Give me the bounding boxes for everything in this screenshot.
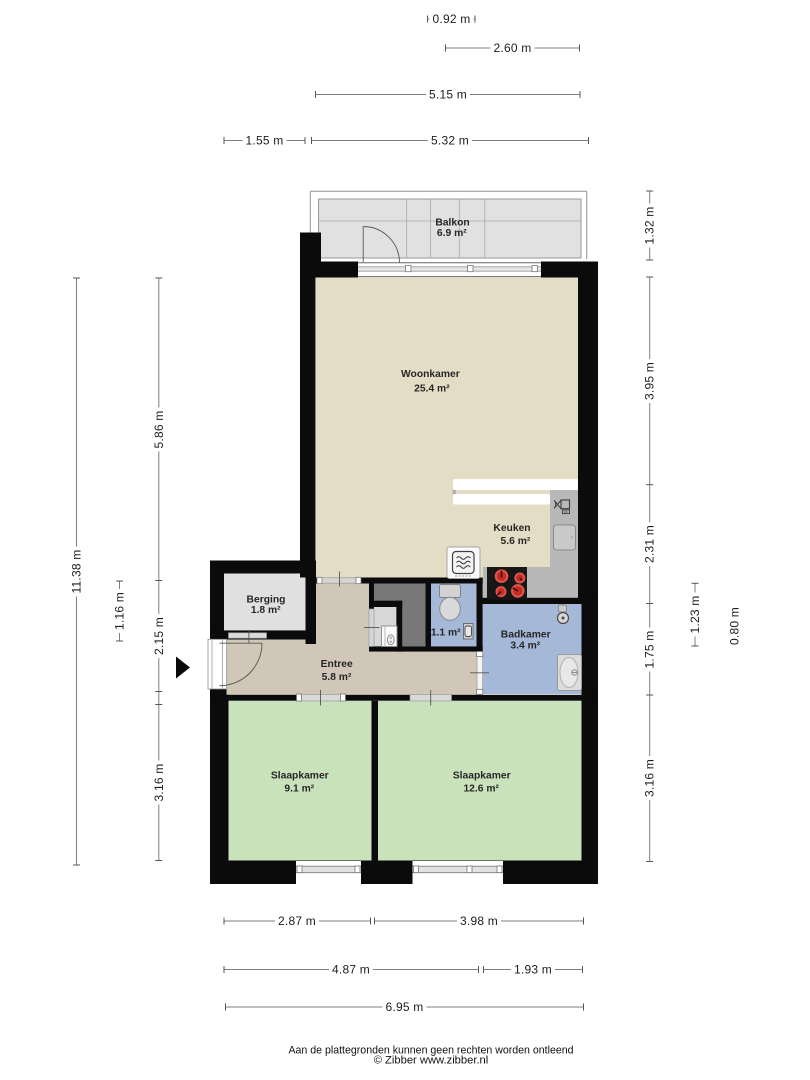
svg-text:© Zibber www.zibber.nl: © Zibber www.zibber.nl: [374, 1055, 489, 1067]
svg-text:1.75 m: 1.75 m: [643, 631, 657, 669]
svg-text:4.87 m: 4.87 m: [332, 963, 370, 977]
svg-text:12.6 m²: 12.6 m²: [463, 784, 499, 795]
svg-text:1.8 m²: 1.8 m²: [251, 605, 281, 616]
svg-text:Slaapkamer: Slaapkamer: [453, 771, 511, 782]
svg-text:5.15 m: 5.15 m: [429, 88, 467, 102]
svg-text:1.32 m: 1.32 m: [643, 207, 657, 245]
svg-text:6.95 m: 6.95 m: [386, 1000, 424, 1014]
svg-text:1.55 m: 1.55 m: [246, 134, 284, 148]
svg-text:5.8 m²: 5.8 m²: [322, 672, 352, 683]
svg-text:5.86 m: 5.86 m: [152, 411, 166, 449]
svg-text:2.60 m: 2.60 m: [494, 41, 532, 55]
svg-text:2.87 m: 2.87 m: [278, 914, 316, 928]
svg-text:3.16 m: 3.16 m: [152, 764, 166, 802]
svg-text:0.92 m: 0.92 m: [433, 12, 471, 26]
svg-text:5.32 m: 5.32 m: [431, 134, 469, 148]
svg-text:3.4 m²: 3.4 m²: [510, 641, 540, 652]
svg-text:3.16 m: 3.16 m: [643, 759, 657, 797]
svg-text:Berging: Berging: [247, 595, 286, 606]
svg-text:1.16 m: 1.16 m: [113, 592, 127, 630]
svg-text:1.93 m: 1.93 m: [514, 963, 552, 977]
svg-text:2.15 m: 2.15 m: [152, 617, 166, 655]
svg-text:1.23 m: 1.23 m: [688, 596, 702, 634]
svg-text:Badkamer: Badkamer: [501, 630, 551, 641]
svg-text:2.31 m: 2.31 m: [643, 525, 657, 563]
svg-text:9.1 m²: 9.1 m²: [284, 784, 314, 795]
svg-text:3.98 m: 3.98 m: [460, 914, 498, 928]
svg-text:Entree: Entree: [321, 659, 353, 670]
svg-text:11.38 m: 11.38 m: [70, 550, 84, 594]
svg-text:Slaapkamer: Slaapkamer: [271, 771, 329, 782]
svg-text:3.95 m: 3.95 m: [643, 362, 657, 400]
svg-text:Balkon: Balkon: [435, 218, 469, 229]
svg-text:0.80 m: 0.80 m: [728, 607, 742, 645]
svg-text:6.9 m²: 6.9 m²: [437, 228, 467, 239]
svg-text:5.6 m²: 5.6 m²: [501, 536, 531, 547]
svg-text:Keuken: Keuken: [493, 523, 530, 534]
svg-text:25.4 m²: 25.4 m²: [414, 384, 450, 395]
svg-text:Woonkamer: Woonkamer: [401, 369, 460, 380]
svg-text:1.1 m²: 1.1 m²: [431, 628, 461, 639]
